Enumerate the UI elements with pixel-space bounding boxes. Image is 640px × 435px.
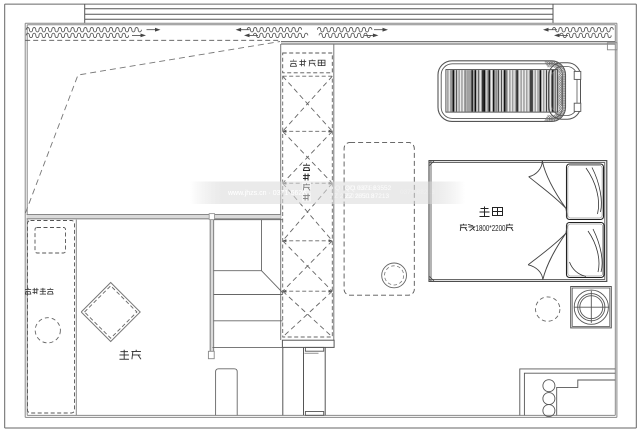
svg-text:www.jhzs.cn · 0371-6626: www.jhzs.cn · 0371-6626 [227, 190, 306, 197]
svg-text:ZZ 2850 87213: ZZ 2850 87213 [345, 193, 389, 200]
svg-text:QQ 0371 63552: QQ 0371 63552 [345, 185, 392, 192]
svg-text:1800*2200: 1800*2200 [476, 223, 506, 233]
